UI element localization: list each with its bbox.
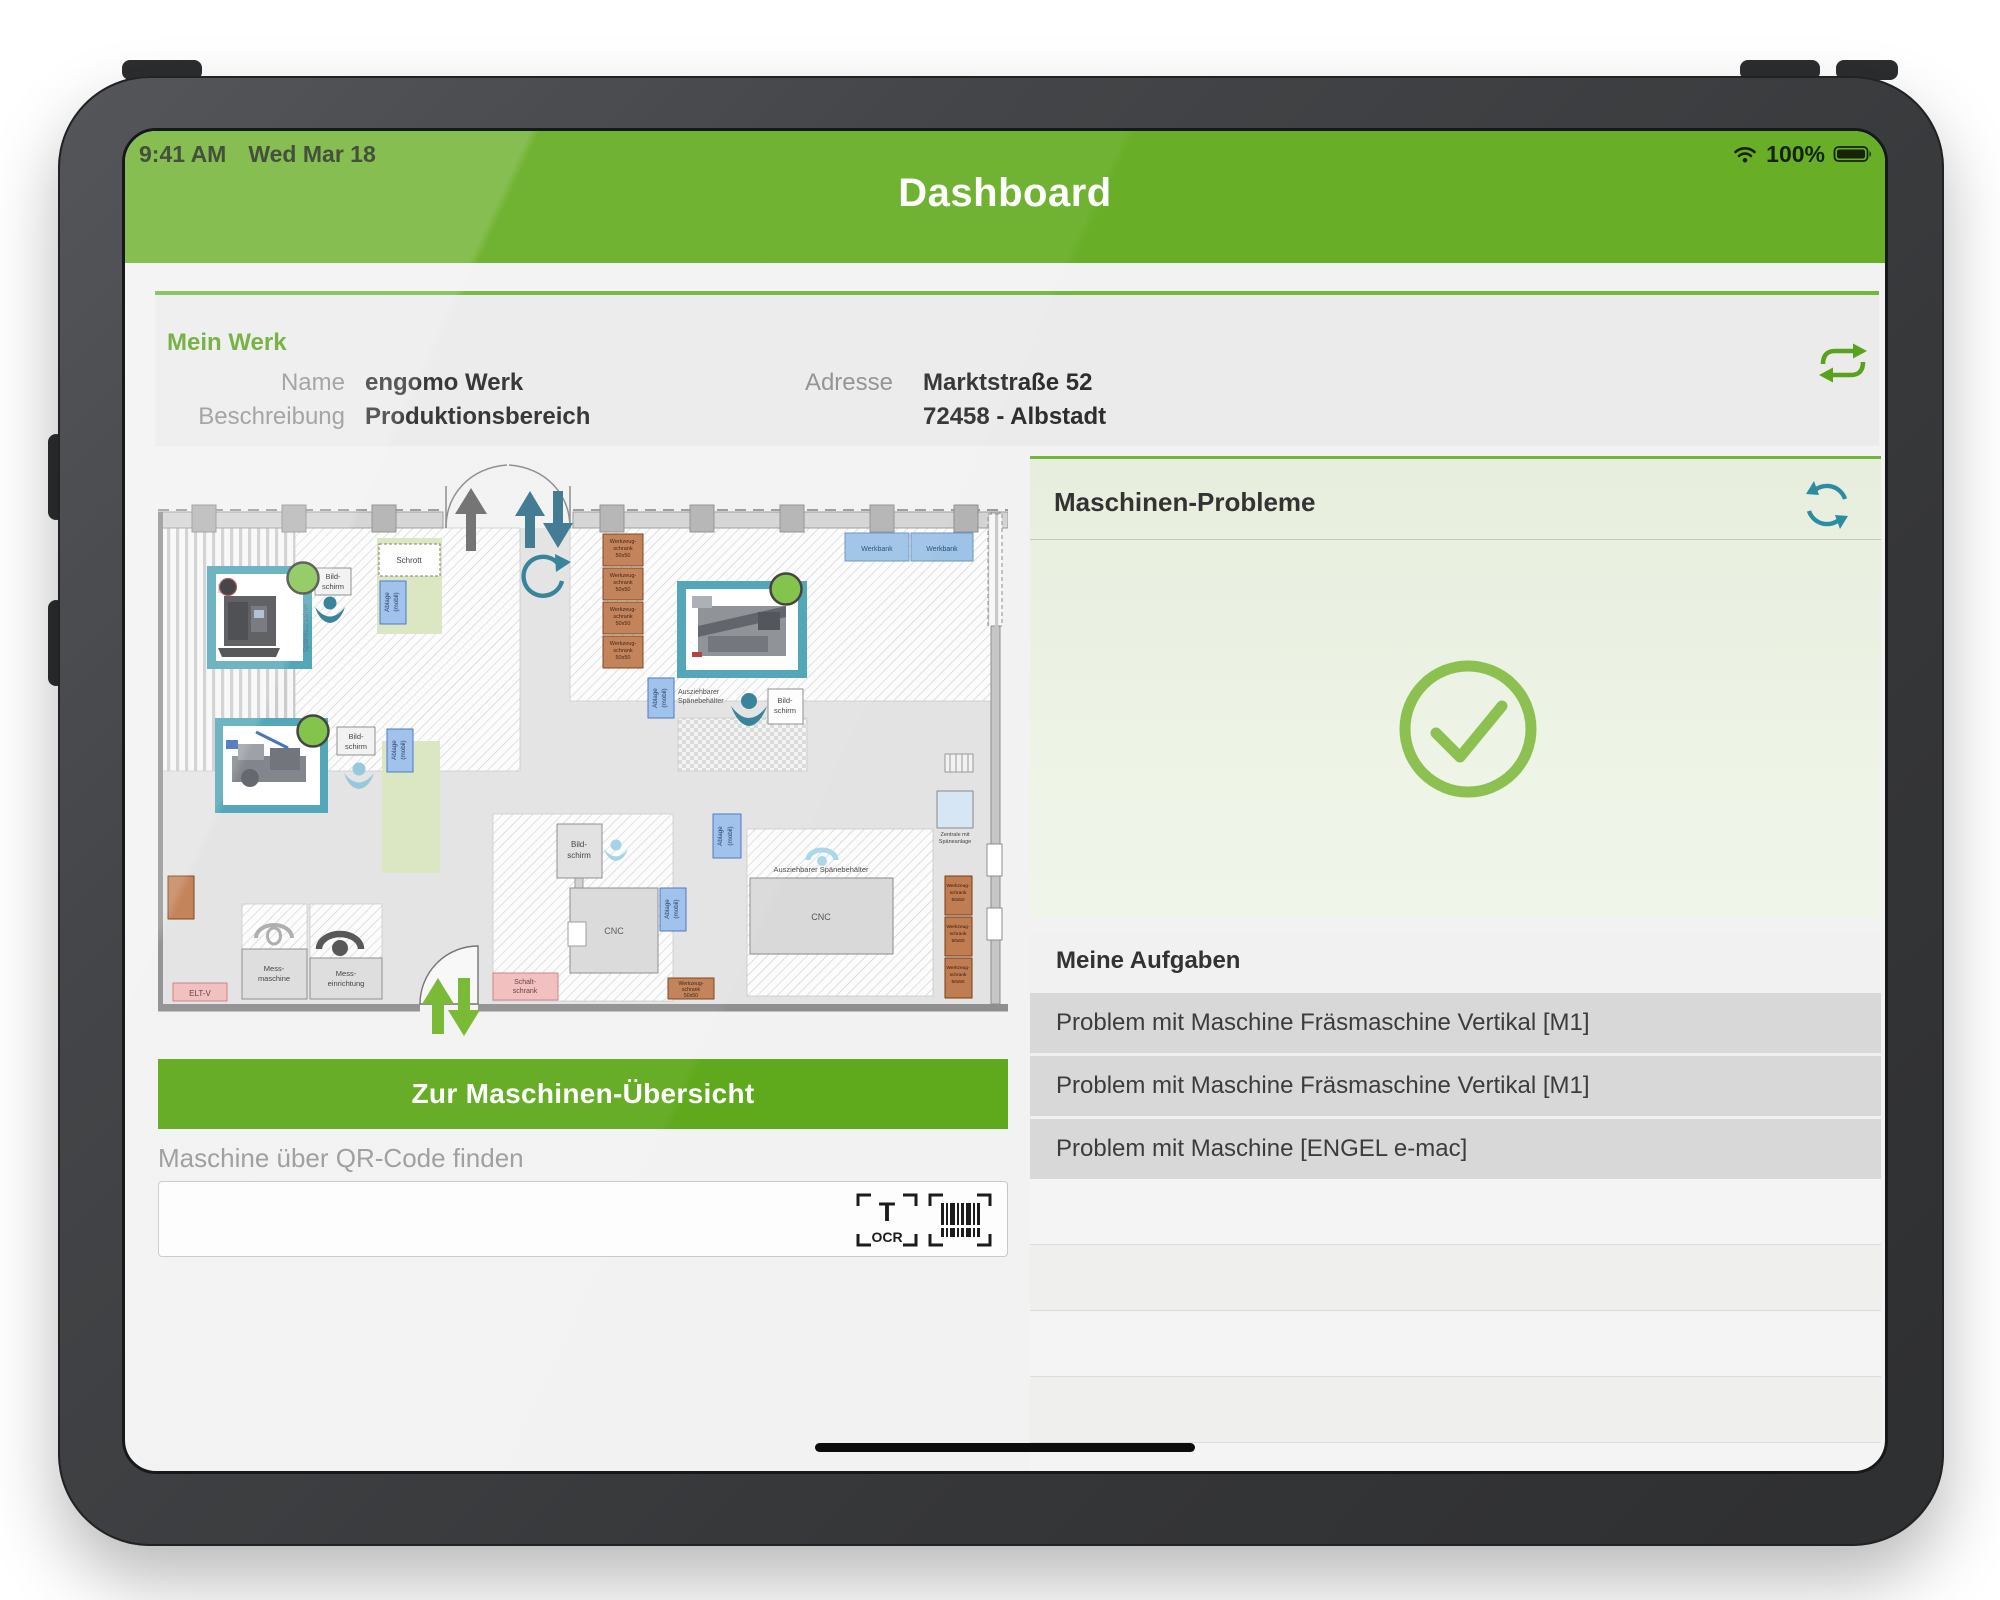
svg-text:50x50: 50x50	[616, 655, 631, 661]
svg-text:Ausziehbarer: Ausziehbarer	[678, 689, 720, 696]
svg-text:50x50: 50x50	[616, 553, 631, 559]
svg-text:schirm: schirm	[322, 582, 344, 591]
maschinen-probleme-panel: Maschinen-Probleme	[1030, 456, 1881, 918]
svg-text:50x50: 50x50	[951, 938, 964, 944]
svg-text:Werkzeug-: Werkzeug-	[610, 641, 637, 647]
status-time: 9:41 AM	[139, 141, 226, 168]
ocr-scan-icon[interactable]: T OCR	[854, 1190, 920, 1250]
svg-text:Bild-: Bild-	[325, 572, 341, 581]
svg-text:50x50: 50x50	[616, 621, 631, 627]
adresse-value-2: 72458 - Albstadt	[923, 403, 1106, 431]
svg-text:Ablage: Ablage	[384, 592, 391, 612]
meine-aufgaben-header: Meine Aufgaben	[1030, 931, 1881, 993]
ipad-frame: 9:41 AM Wed Mar 18 100%	[58, 76, 1944, 1546]
empty-task-row	[1030, 1377, 1881, 1443]
refresh-icon[interactable]	[1801, 479, 1853, 531]
svg-text:(mobil): (mobil)	[400, 740, 407, 759]
svg-text:schrank: schrank	[950, 890, 967, 896]
mein-werk-panel: Mein Werk Name engomo Werk Beschreibung …	[155, 291, 1879, 446]
machine-marker-3[interactable]	[771, 574, 802, 605]
app-header: 9:41 AM Wed Mar 18 100%	[125, 131, 1885, 263]
status-date: Wed Mar 18	[248, 141, 375, 168]
svg-text:schirm: schirm	[774, 706, 796, 715]
svg-text:50x50: 50x50	[684, 993, 698, 999]
svg-text:Ausziehbarer Spänebehälter: Ausziehbarer Spänebehälter	[773, 865, 869, 874]
page-title: Dashboard	[125, 171, 1885, 216]
svg-text:Mess-: Mess-	[336, 969, 357, 978]
svg-text:Werkbank: Werkbank	[926, 546, 958, 553]
svg-text:Ablage: Ablage	[391, 740, 398, 760]
svg-text:schirm: schirm	[345, 742, 367, 751]
svg-text:Bild-: Bild-	[571, 840, 587, 849]
machine-marker-2[interactable]	[298, 716, 329, 747]
beschreibung-label: Beschreibung	[165, 403, 345, 431]
svg-text:Werkzeug-: Werkzeug-	[946, 965, 970, 971]
svg-text:(mobil): (mobil)	[393, 592, 400, 611]
svg-text:(mobil): (mobil)	[727, 826, 734, 845]
svg-text:schrank: schrank	[613, 546, 633, 552]
floor-plan[interactable]: Spänecontainer	[158, 456, 1008, 1036]
name-value: engomo Werk	[365, 369, 523, 397]
svg-text:Werkzeug-: Werkzeug-	[946, 883, 970, 889]
svg-text:Spänebehälter: Spänebehälter	[678, 698, 724, 705]
task-row-2[interactable]: Problem mit Maschine Fräsmaschine Vertik…	[1030, 1056, 1881, 1116]
svg-text:schrank: schrank	[613, 648, 633, 654]
svg-text:Bild-: Bild-	[777, 696, 793, 705]
svg-text:CNC: CNC	[604, 926, 624, 936]
meine-aufgaben-title: Meine Aufgaben	[1056, 947, 1240, 975]
machine-marker-1[interactable]	[288, 563, 319, 594]
svg-text:schrank: schrank	[613, 614, 633, 620]
battery-icon	[1833, 144, 1875, 164]
app-screen: 9:41 AM Wed Mar 18 100%	[122, 128, 1888, 1474]
mein-werk-title: Mein Werk	[167, 329, 287, 357]
svg-text:Späneanlage: Späneanlage	[939, 839, 971, 845]
svg-text:schrank: schrank	[950, 972, 967, 978]
adresse-value: Marktstraße 52	[923, 369, 1092, 397]
svg-text:Werkzeug-: Werkzeug-	[610, 539, 637, 545]
status-bar: 9:41 AM Wed Mar 18 100%	[125, 131, 1885, 171]
svg-text:einrichtung: einrichtung	[328, 979, 365, 988]
adresse-label: Adresse	[713, 369, 893, 397]
svg-text:Werkzeug-: Werkzeug-	[946, 924, 970, 930]
svg-text:Ablage: Ablage	[664, 899, 671, 919]
barcode-scan-icon[interactable]	[926, 1190, 994, 1250]
svg-text:Schalt-: Schalt-	[514, 979, 536, 986]
svg-text:Ablage: Ablage	[717, 826, 724, 846]
svg-text:(mobil): (mobil)	[673, 899, 680, 918]
qr-find-label: Maschine über QR-Code finden	[158, 1143, 524, 1174]
beschreibung-value: Produktionsbereich	[365, 403, 590, 431]
svg-text:50x50: 50x50	[951, 979, 964, 985]
empty-task-row	[1030, 1245, 1881, 1311]
qr-field: T OCR	[158, 1181, 1008, 1257]
svg-text:Werkzeug-: Werkzeug-	[610, 607, 637, 613]
divider	[1030, 539, 1881, 540]
home-indicator[interactable]	[815, 1443, 1195, 1452]
svg-text:schirm: schirm	[567, 851, 591, 860]
svg-text:T: T	[879, 1197, 896, 1227]
svg-text:(mobil): (mobil)	[661, 688, 668, 707]
svg-text:Werkzeug-: Werkzeug-	[610, 573, 637, 579]
svg-text:Bild-: Bild-	[348, 732, 364, 741]
svg-text:50x50: 50x50	[616, 587, 631, 593]
svg-text:maschine: maschine	[258, 974, 290, 983]
svg-text:Zentrale mit: Zentrale mit	[940, 832, 970, 838]
empty-task-row	[1030, 1179, 1881, 1245]
battery-percent: 100%	[1766, 141, 1825, 168]
task-row-3[interactable]: Problem mit Maschine [ENGEL e-mac]	[1030, 1119, 1881, 1179]
svg-text:schrank: schrank	[950, 931, 967, 937]
svg-text:Ablage: Ablage	[652, 688, 659, 708]
svg-text:CNC: CNC	[811, 912, 831, 922]
svg-text:OCR: OCR	[871, 1229, 902, 1245]
svg-text:ELT-V: ELT-V	[189, 989, 211, 998]
maschinen-probleme-title: Maschinen-Probleme	[1054, 487, 1316, 518]
svg-text:Werkbank: Werkbank	[861, 546, 893, 553]
page-background: 9:41 AM Wed Mar 18 100%	[0, 0, 2000, 1600]
swap-werk-icon[interactable]	[1815, 339, 1871, 387]
svg-text:schrank: schrank	[613, 580, 633, 586]
name-label: Name	[165, 369, 345, 397]
svg-text:50x50: 50x50	[951, 897, 964, 903]
wifi-icon	[1732, 144, 1758, 164]
machine-overview-button[interactable]: Zur Maschinen-Übersicht	[158, 1059, 1008, 1129]
svg-text:Schrott: Schrott	[396, 556, 422, 565]
svg-text:Mess-: Mess-	[264, 964, 285, 973]
ok-check-icon	[1388, 649, 1548, 809]
plan-label: Spänecontainer	[303, 603, 310, 653]
empty-task-row	[1030, 1311, 1881, 1377]
svg-text:schrank: schrank	[513, 988, 538, 995]
task-row-1[interactable]: Problem mit Maschine Fräsmaschine Vertik…	[1030, 993, 1881, 1053]
